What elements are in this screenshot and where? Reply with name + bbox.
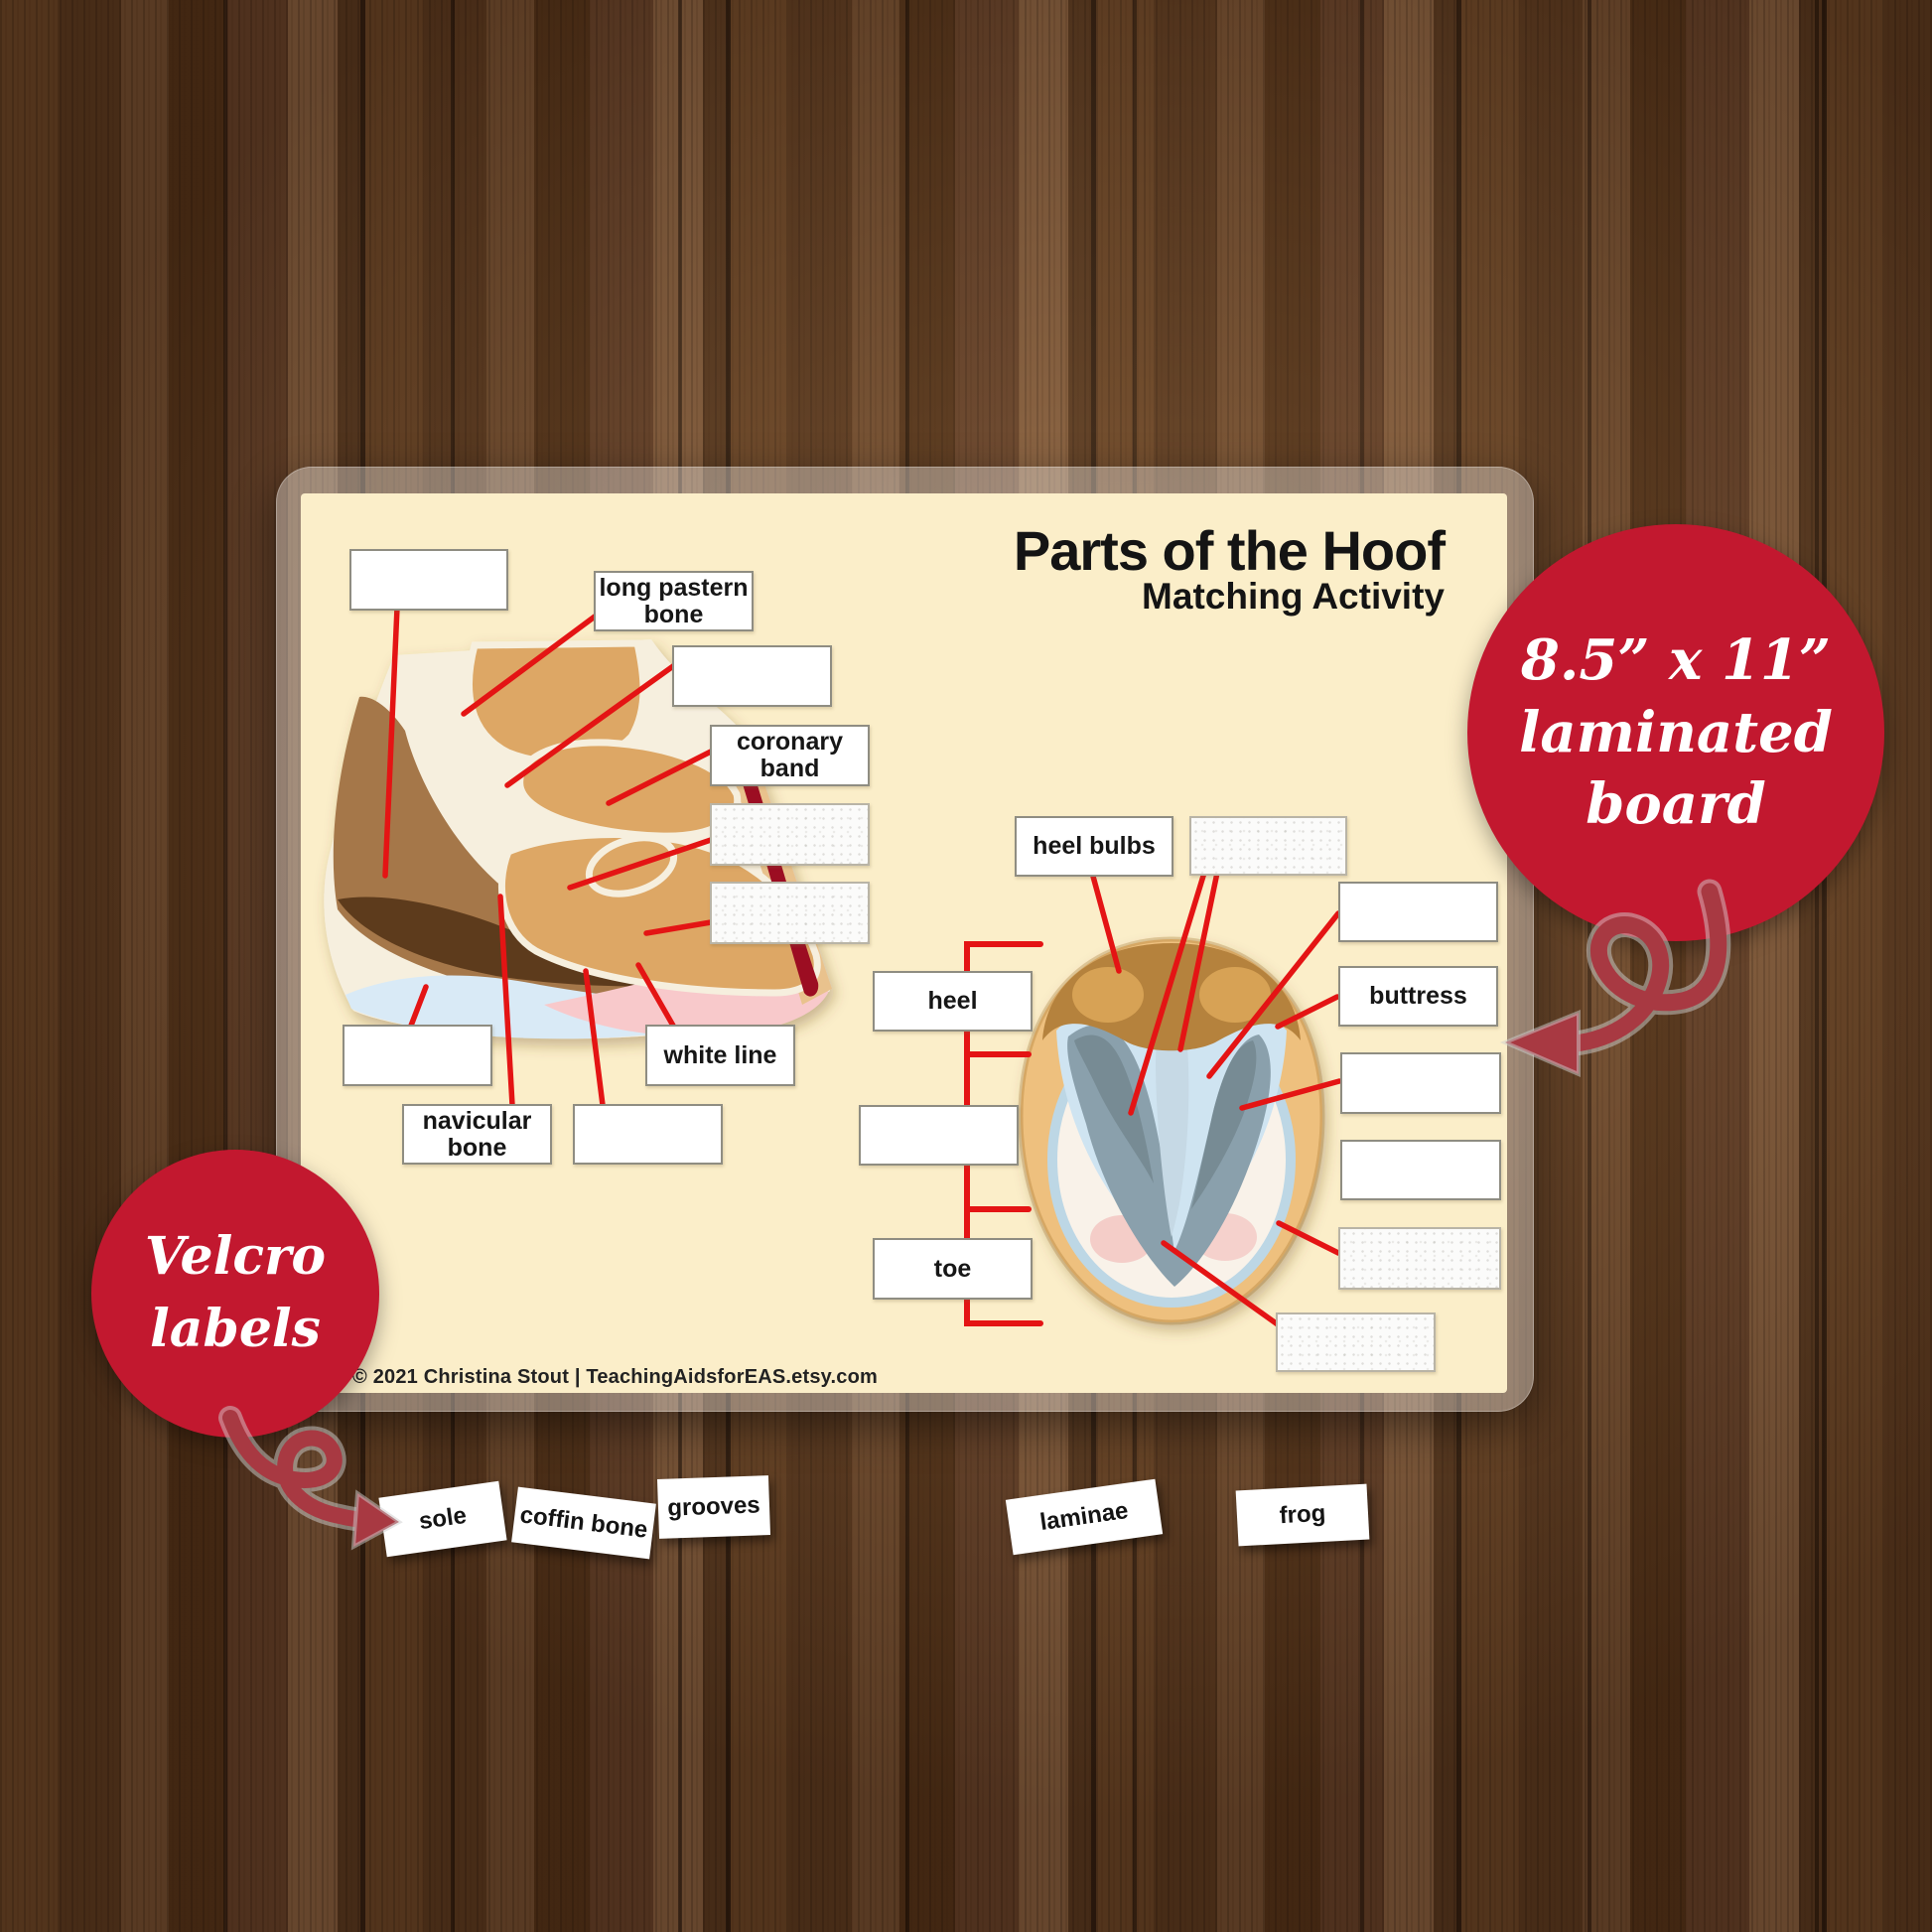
- blank-label-slot: [1340, 1052, 1501, 1114]
- velcro-badge: Velcro labels: [91, 1150, 379, 1438]
- tile-grooves: grooves: [657, 1475, 770, 1539]
- page-title: Parts of the Hoof: [1014, 518, 1445, 583]
- blank-label-slot: [1340, 1140, 1501, 1200]
- tile-laminae: laminae: [1006, 1479, 1163, 1556]
- blank-label-slot: [859, 1105, 1019, 1166]
- velcro-label-slot: [1276, 1312, 1436, 1372]
- blank-label-slot: [343, 1025, 492, 1086]
- blank-label-slot: [672, 645, 832, 707]
- tile-sole: sole: [378, 1481, 506, 1557]
- label-buttress: buttress: [1338, 966, 1498, 1027]
- tile-coffin-bone: coffin bone: [511, 1487, 656, 1560]
- product-photo-stage: Parts of the Hoof Matching Activity © 20…: [0, 0, 1932, 1932]
- blank-label-slot: [1338, 882, 1498, 942]
- velcro-label-slot: [710, 882, 870, 944]
- velcro-label-slot: [1189, 816, 1347, 876]
- page-subtitle: Matching Activity: [1142, 576, 1445, 618]
- label-white-line: white line: [645, 1025, 795, 1086]
- velcro-label-slot: [1338, 1227, 1501, 1290]
- label-heel: heel: [873, 971, 1033, 1032]
- velcro-badge-arrow: [230, 1418, 399, 1547]
- label-coronary-band: coronary band: [710, 725, 870, 786]
- copyright-text: © 2021 Christina Stout | TeachingAidsfor…: [352, 1366, 878, 1389]
- label-navicular-bone: navicular bone: [402, 1104, 552, 1165]
- label-heel-bulbs: heel bulbs: [1015, 816, 1173, 877]
- tile-frog: frog: [1236, 1484, 1370, 1547]
- size-badge: 8.5” x 11” laminated board: [1467, 524, 1884, 941]
- velcro-label-slot: [710, 803, 870, 866]
- blank-label-slot: [573, 1104, 723, 1165]
- blank-label-slot: [349, 549, 508, 611]
- label-long-pastern-bone: long pastern bone: [594, 571, 754, 631]
- label-toe: toe: [873, 1238, 1033, 1300]
